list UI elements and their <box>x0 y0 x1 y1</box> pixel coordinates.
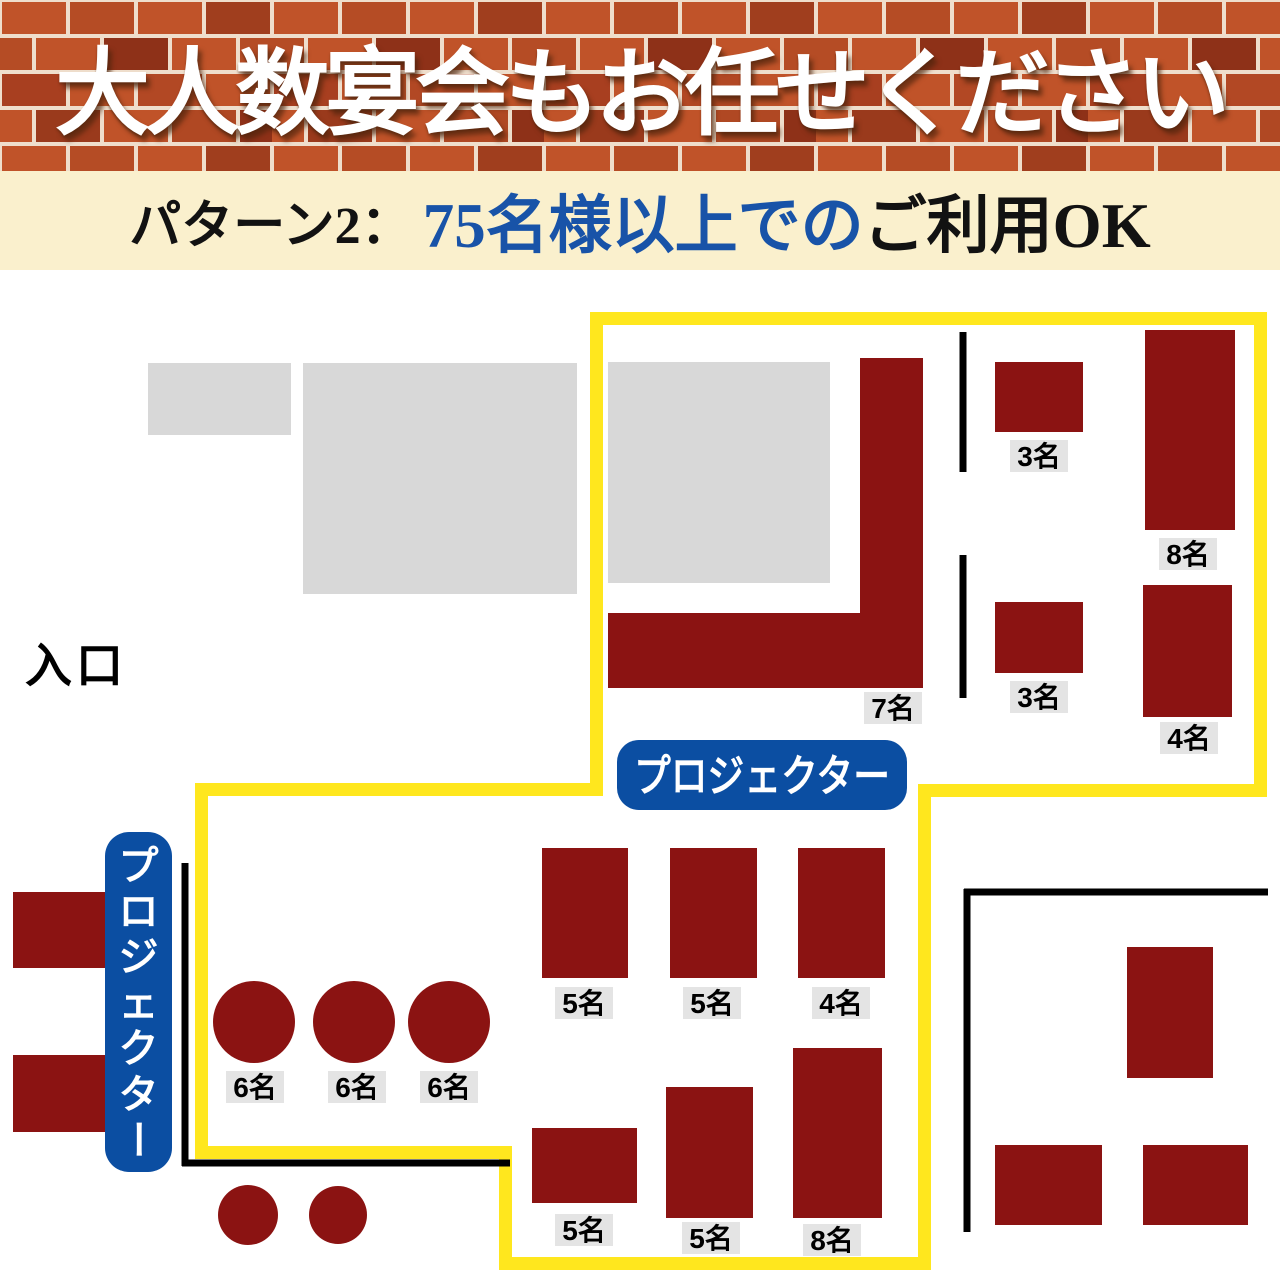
entrance-label: 入口 <box>25 639 127 692</box>
table-7-l-shape-label: 7名 <box>871 693 915 724</box>
table-8-upper-label: 8名 <box>1166 539 1210 570</box>
table-round-6-c <box>408 981 490 1063</box>
table-right-bottom-a <box>995 1145 1102 1225</box>
capacity-highlight: 75名様以上での <box>423 175 864 266</box>
table-round-small-a <box>218 1185 278 1245</box>
table-5-row2-a-label: 5名 <box>562 1215 606 1246</box>
table-round-6-a-label: 6名 <box>233 1072 277 1103</box>
projector-label-side-char: ー <box>115 1119 159 1159</box>
projector-label-side-char: ク <box>119 1027 159 1071</box>
projector-label-side-char: ジ <box>119 936 159 980</box>
table-round-6-b <box>313 981 395 1063</box>
table-round-small-b <box>309 1186 367 1244</box>
table-4-upper <box>1143 585 1232 717</box>
table-3-upper-label: 3名 <box>1017 441 1061 472</box>
projector-label-main-text: プロジェクター <box>634 752 890 801</box>
gray-area-3 <box>608 362 830 583</box>
projector-label-side-char: プ <box>119 844 159 888</box>
table-5-row1-a-label: 5名 <box>562 988 606 1019</box>
projector-label-side-char: ェ <box>119 981 159 1025</box>
gray-area-2 <box>303 363 577 594</box>
table-8-row2 <box>793 1048 882 1218</box>
table-right-bottom-b <box>1143 1145 1248 1225</box>
table-round-6-b-label: 6名 <box>335 1072 379 1103</box>
table-5-row2-a <box>532 1128 637 1203</box>
pattern-label: パターン2： <box>129 183 412 258</box>
table-4-upper-label: 4名 <box>1167 723 1211 754</box>
table-8-row2-label: 8名 <box>810 1225 854 1256</box>
table-4-row1-label: 4名 <box>819 988 863 1019</box>
table-4-row1 <box>798 848 885 978</box>
table-3-upper <box>995 362 1083 432</box>
floor-plan-svg: 7名3名8名3名4名5名5名4名5名5名8名6名6名6名プロジェクタープロジェク… <box>0 270 1280 1280</box>
usage-ok-label: ご利用OK <box>864 175 1151 266</box>
table-5-row1-b <box>670 848 757 978</box>
table-left-a <box>13 892 105 968</box>
poster: 大人数宴会もお任せください パターン2： 75名様以上での ご利用OK 7名3名… <box>0 0 1280 1280</box>
table-round-6-c-label: 6名 <box>427 1072 471 1103</box>
table-5-row1-b-label: 5名 <box>690 988 734 1019</box>
table-3-lower <box>995 602 1083 673</box>
table-5-row2-b-label: 5名 <box>689 1223 733 1254</box>
table-round-6-a <box>213 981 295 1063</box>
table-right-vertical <box>1127 947 1213 1078</box>
floor-plan: 7名3名8名3名4名5名5名4名5名5名8名6名6名6名プロジェクタープロジェク… <box>0 270 1280 1280</box>
table-5-row2-b <box>666 1087 753 1218</box>
table-left-b <box>13 1055 105 1132</box>
table-5-row1-a <box>542 848 628 978</box>
pattern-banner: パターン2： 75名様以上での ご利用OK <box>0 171 1280 270</box>
projector-label-side-char: ロ <box>119 890 159 934</box>
brick-banner: 大人数宴会もお任せください <box>0 0 1280 171</box>
gray-area-1 <box>148 363 291 435</box>
table-8-upper <box>1145 330 1235 530</box>
projector-label-side-char: タ <box>119 1073 159 1117</box>
poster-title: 大人数宴会もお任せください <box>0 0 1280 171</box>
table-3-lower-label: 3名 <box>1017 682 1061 713</box>
